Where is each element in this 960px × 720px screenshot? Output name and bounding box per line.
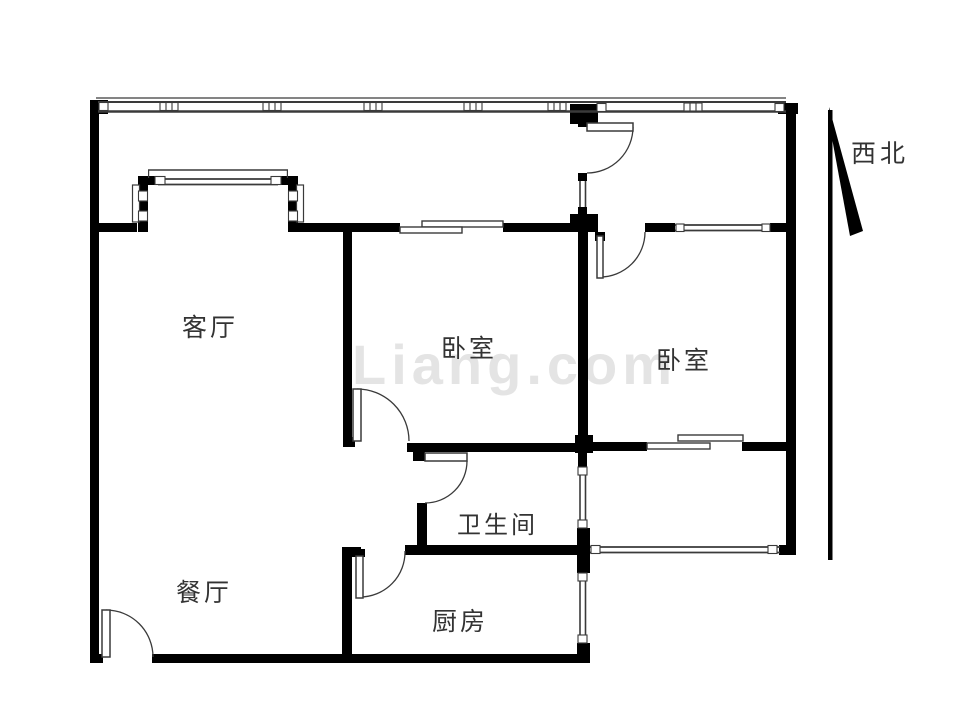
mullion-group <box>464 103 482 111</box>
wall-band-c <box>503 223 570 232</box>
mullion-group <box>684 103 702 111</box>
mullion-mark <box>676 224 684 232</box>
wall-bathroom-top <box>407 443 578 452</box>
dining-room-label: 餐厅 <box>176 579 232 607</box>
mullion-mark <box>591 546 600 554</box>
mullion-mark <box>155 177 165 185</box>
balcony-partition-door-leaf <box>587 123 633 131</box>
kitchen-door-leaf <box>356 556 363 598</box>
wall-band-d <box>645 223 675 232</box>
bedroom-2-label: 卧室 <box>656 347 712 375</box>
mullion-mark <box>578 520 587 528</box>
mullion-mark <box>289 191 298 201</box>
compass-label: 西北 <box>851 141 909 168</box>
living-room-label: 客厅 <box>182 314 238 342</box>
bedroom1-north-sliding-door-panel-1 <box>422 221 503 227</box>
wall-dining-kitchen-divider <box>342 557 352 663</box>
mullion-mark <box>775 104 784 112</box>
mullion-mark <box>768 546 777 554</box>
mullion-mark <box>578 635 587 643</box>
wall-left <box>90 100 99 663</box>
mullion-mark <box>139 191 148 201</box>
bathroom-door-leaf <box>425 453 467 461</box>
compass-arrow-shaft <box>828 110 833 560</box>
wall-bed2-south-cap <box>779 545 796 555</box>
mullion-mark <box>271 177 281 185</box>
wall-living-divider <box>343 232 352 437</box>
wall-band-b <box>298 223 400 232</box>
mullion-mark <box>578 573 587 581</box>
wall-bathroom-hinge-block <box>413 452 425 461</box>
wall-mid-junction-block <box>570 214 598 232</box>
kitchen-label: 厨房 <box>432 608 488 636</box>
bedroom-1-label: 卧室 <box>441 335 497 363</box>
wall-bottom <box>152 654 588 663</box>
wall-bathroom-left <box>417 503 427 547</box>
wall-bottom-left-stub <box>90 654 103 663</box>
bathroom-label: 卫生间 <box>457 512 538 539</box>
wall-center-main <box>578 232 588 435</box>
wall-sidelight-cap-bottom <box>578 207 587 215</box>
watermark-text: Liang.com <box>352 333 677 396</box>
mullion-mark <box>99 103 108 111</box>
floor-plan-canvas: Liang.com <box>0 0 960 720</box>
bedroom-2-door-leaf <box>597 236 603 278</box>
wall-kitchen-right-top <box>577 553 590 573</box>
bedroom1-north-sliding-door-panel-2 <box>400 227 462 233</box>
wall-band-a <box>99 223 137 232</box>
mullion-mark <box>139 211 148 221</box>
wall-kitchen-right-bottom <box>577 643 590 663</box>
bedroom2-south-sliding-door-panel-2 <box>647 443 710 449</box>
mullion-mark <box>762 224 770 232</box>
mullion-group <box>263 103 281 111</box>
floor-plan-page: Liang.com <box>0 0 960 720</box>
mullion-group <box>548 103 566 111</box>
wall-right <box>786 103 796 555</box>
wall-alcove-top-stub <box>578 453 587 467</box>
mullion-mark <box>578 467 587 475</box>
wall-bed2-sliding-left <box>593 442 647 451</box>
mullion-mark <box>597 104 606 112</box>
bedroom-1-door-leaf <box>353 389 361 441</box>
mullion-mark <box>289 211 298 221</box>
wall-sidelight-cap-top <box>578 173 587 181</box>
wall-bed2-sliding-right <box>742 442 788 451</box>
entry-door-leaf <box>102 610 110 657</box>
mullion-group <box>160 103 178 111</box>
wall-band-e <box>770 223 786 232</box>
wall-bathroom-bottom <box>405 545 580 555</box>
mullion-group <box>364 103 382 111</box>
bedroom2-south-sliding-door-panel-1 <box>678 435 743 441</box>
